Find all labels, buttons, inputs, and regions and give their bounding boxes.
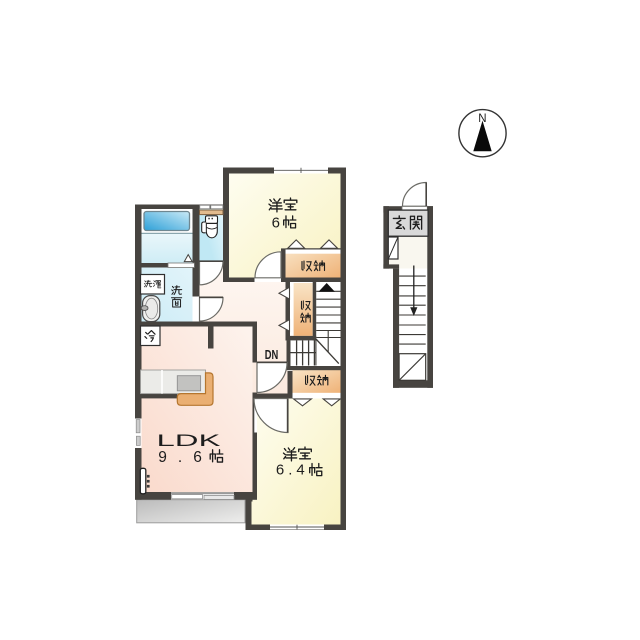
svg-text:.: . [288,461,292,478]
svg-text:N: N [478,113,486,125]
svg-text:.: . [178,449,182,466]
svg-text:DN: DN [265,348,279,362]
svg-text:6: 6 [193,449,202,466]
svg-text:6: 6 [272,214,280,231]
svg-text:6: 6 [276,461,284,478]
svg-text:9: 9 [158,449,167,466]
svg-text:4: 4 [296,461,304,478]
svg-text:LDK: LDK [157,431,222,450]
